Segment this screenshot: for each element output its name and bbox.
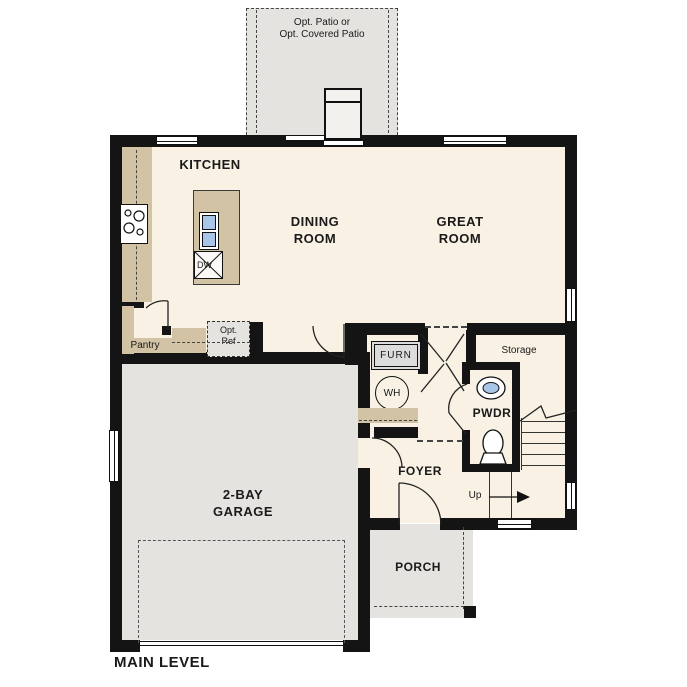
- counter-dash-line: [172, 342, 250, 343]
- porch-edge-dash-bottom: [374, 606, 464, 607]
- porch-post: [464, 606, 476, 618]
- opt-patio-label-line1: Opt. Patio or: [294, 17, 350, 28]
- drop-zone-counter: [172, 328, 206, 353]
- bench-dash-line: [359, 420, 417, 421]
- garage-wall-bottom-right: [343, 640, 370, 652]
- stair-stringer: [521, 418, 522, 470]
- foyer-label: FOYER: [388, 464, 452, 479]
- powder-wall-left-upper: [462, 362, 470, 384]
- greatroom-top-window: [443, 136, 507, 145]
- stair-right-window: [566, 482, 576, 510]
- sliding-door-panel-a: [285, 135, 326, 141]
- garage-apron-outline: [138, 540, 345, 643]
- porch-edge-dash-right: [463, 527, 464, 609]
- greatroom-right-window: [566, 288, 576, 322]
- garage-door-line: [140, 645, 343, 646]
- opt-ref-box: Opt. Ref: [207, 321, 250, 357]
- stair-rail-line: [511, 472, 512, 518]
- garage-line2: GARAGE: [213, 504, 273, 519]
- garage-left-window: [109, 430, 119, 482]
- pantry-door-jamb: [162, 326, 171, 335]
- powder-room-label: PWDR: [464, 406, 520, 421]
- mud-wall-stub: [250, 322, 263, 357]
- garage-entry-opening: [358, 438, 370, 468]
- stair-rail-line: [489, 472, 490, 518]
- great-room-line2: ROOM: [439, 231, 481, 246]
- opt-ref-label: Opt. Ref: [208, 325, 249, 347]
- garage-label: 2-BAY GARAGE: [193, 487, 293, 520]
- pantry-label: Pantry: [119, 340, 171, 352]
- dishwasher-icon: DW: [194, 251, 223, 279]
- kitchen-window: [156, 136, 198, 145]
- garage-wall-right: [358, 352, 370, 652]
- dining-room-line2: ROOM: [294, 231, 336, 246]
- storage-label: Storage: [487, 345, 551, 357]
- fireplace-divider: [326, 101, 360, 103]
- opt-patio-label: Opt. Patio or Opt. Covered Patio: [246, 17, 398, 41]
- garage-line1: 2-BAY: [223, 487, 263, 502]
- opt-ref-line1: Opt.: [220, 325, 237, 335]
- powder-wall-bottom: [462, 464, 520, 472]
- porch-label: PORCH: [386, 560, 450, 575]
- stair-tread: [521, 454, 565, 455]
- greatroom-opening: [425, 326, 467, 328]
- opt-ref-line2: Ref: [221, 336, 235, 346]
- stair-tread: [521, 432, 565, 433]
- stairs-up-label: Up: [464, 490, 486, 502]
- kitchen-label: KITCHEN: [160, 157, 260, 174]
- stair-tread: [521, 421, 565, 422]
- dining-room-line1: DINING: [291, 214, 340, 229]
- furnace-box: FURN: [371, 341, 421, 370]
- stair-tread: [521, 443, 565, 444]
- bench-wall-stub: [374, 427, 418, 438]
- stove-icon: [120, 204, 148, 244]
- garage-wall-bottom-left: [110, 640, 140, 652]
- foyer-wall-bottom-left: [358, 518, 400, 530]
- foyer-hall-opening: [417, 440, 463, 442]
- great-room-label: GREAT ROOM: [415, 214, 505, 247]
- fireplace-chimney: [324, 88, 362, 140]
- dining-room-label: DINING ROOM: [270, 214, 360, 247]
- great-room-line1: GREAT: [436, 214, 483, 229]
- greatroom-south-wall-right: [467, 323, 577, 335]
- sink-basin: [202, 215, 216, 230]
- water-heater-label: WH: [384, 388, 401, 399]
- opt-patio-label-line2: Opt. Covered Patio: [279, 29, 364, 40]
- main-level-title: MAIN LEVEL: [114, 653, 334, 672]
- foyer-bottom-window: [497, 519, 532, 529]
- furnace-box-inner: FURN: [374, 344, 418, 367]
- dishwasher-label: DW: [196, 260, 213, 270]
- sliding-door-panel-b: [323, 140, 364, 146]
- sink-basin: [202, 232, 216, 247]
- furnace-label: FURN: [380, 350, 412, 361]
- floor-plan: Opt. Patio or Opt. Covered Patio: [0, 0, 687, 687]
- stair-tread: [521, 465, 565, 466]
- water-heater-icon: WH: [375, 376, 409, 410]
